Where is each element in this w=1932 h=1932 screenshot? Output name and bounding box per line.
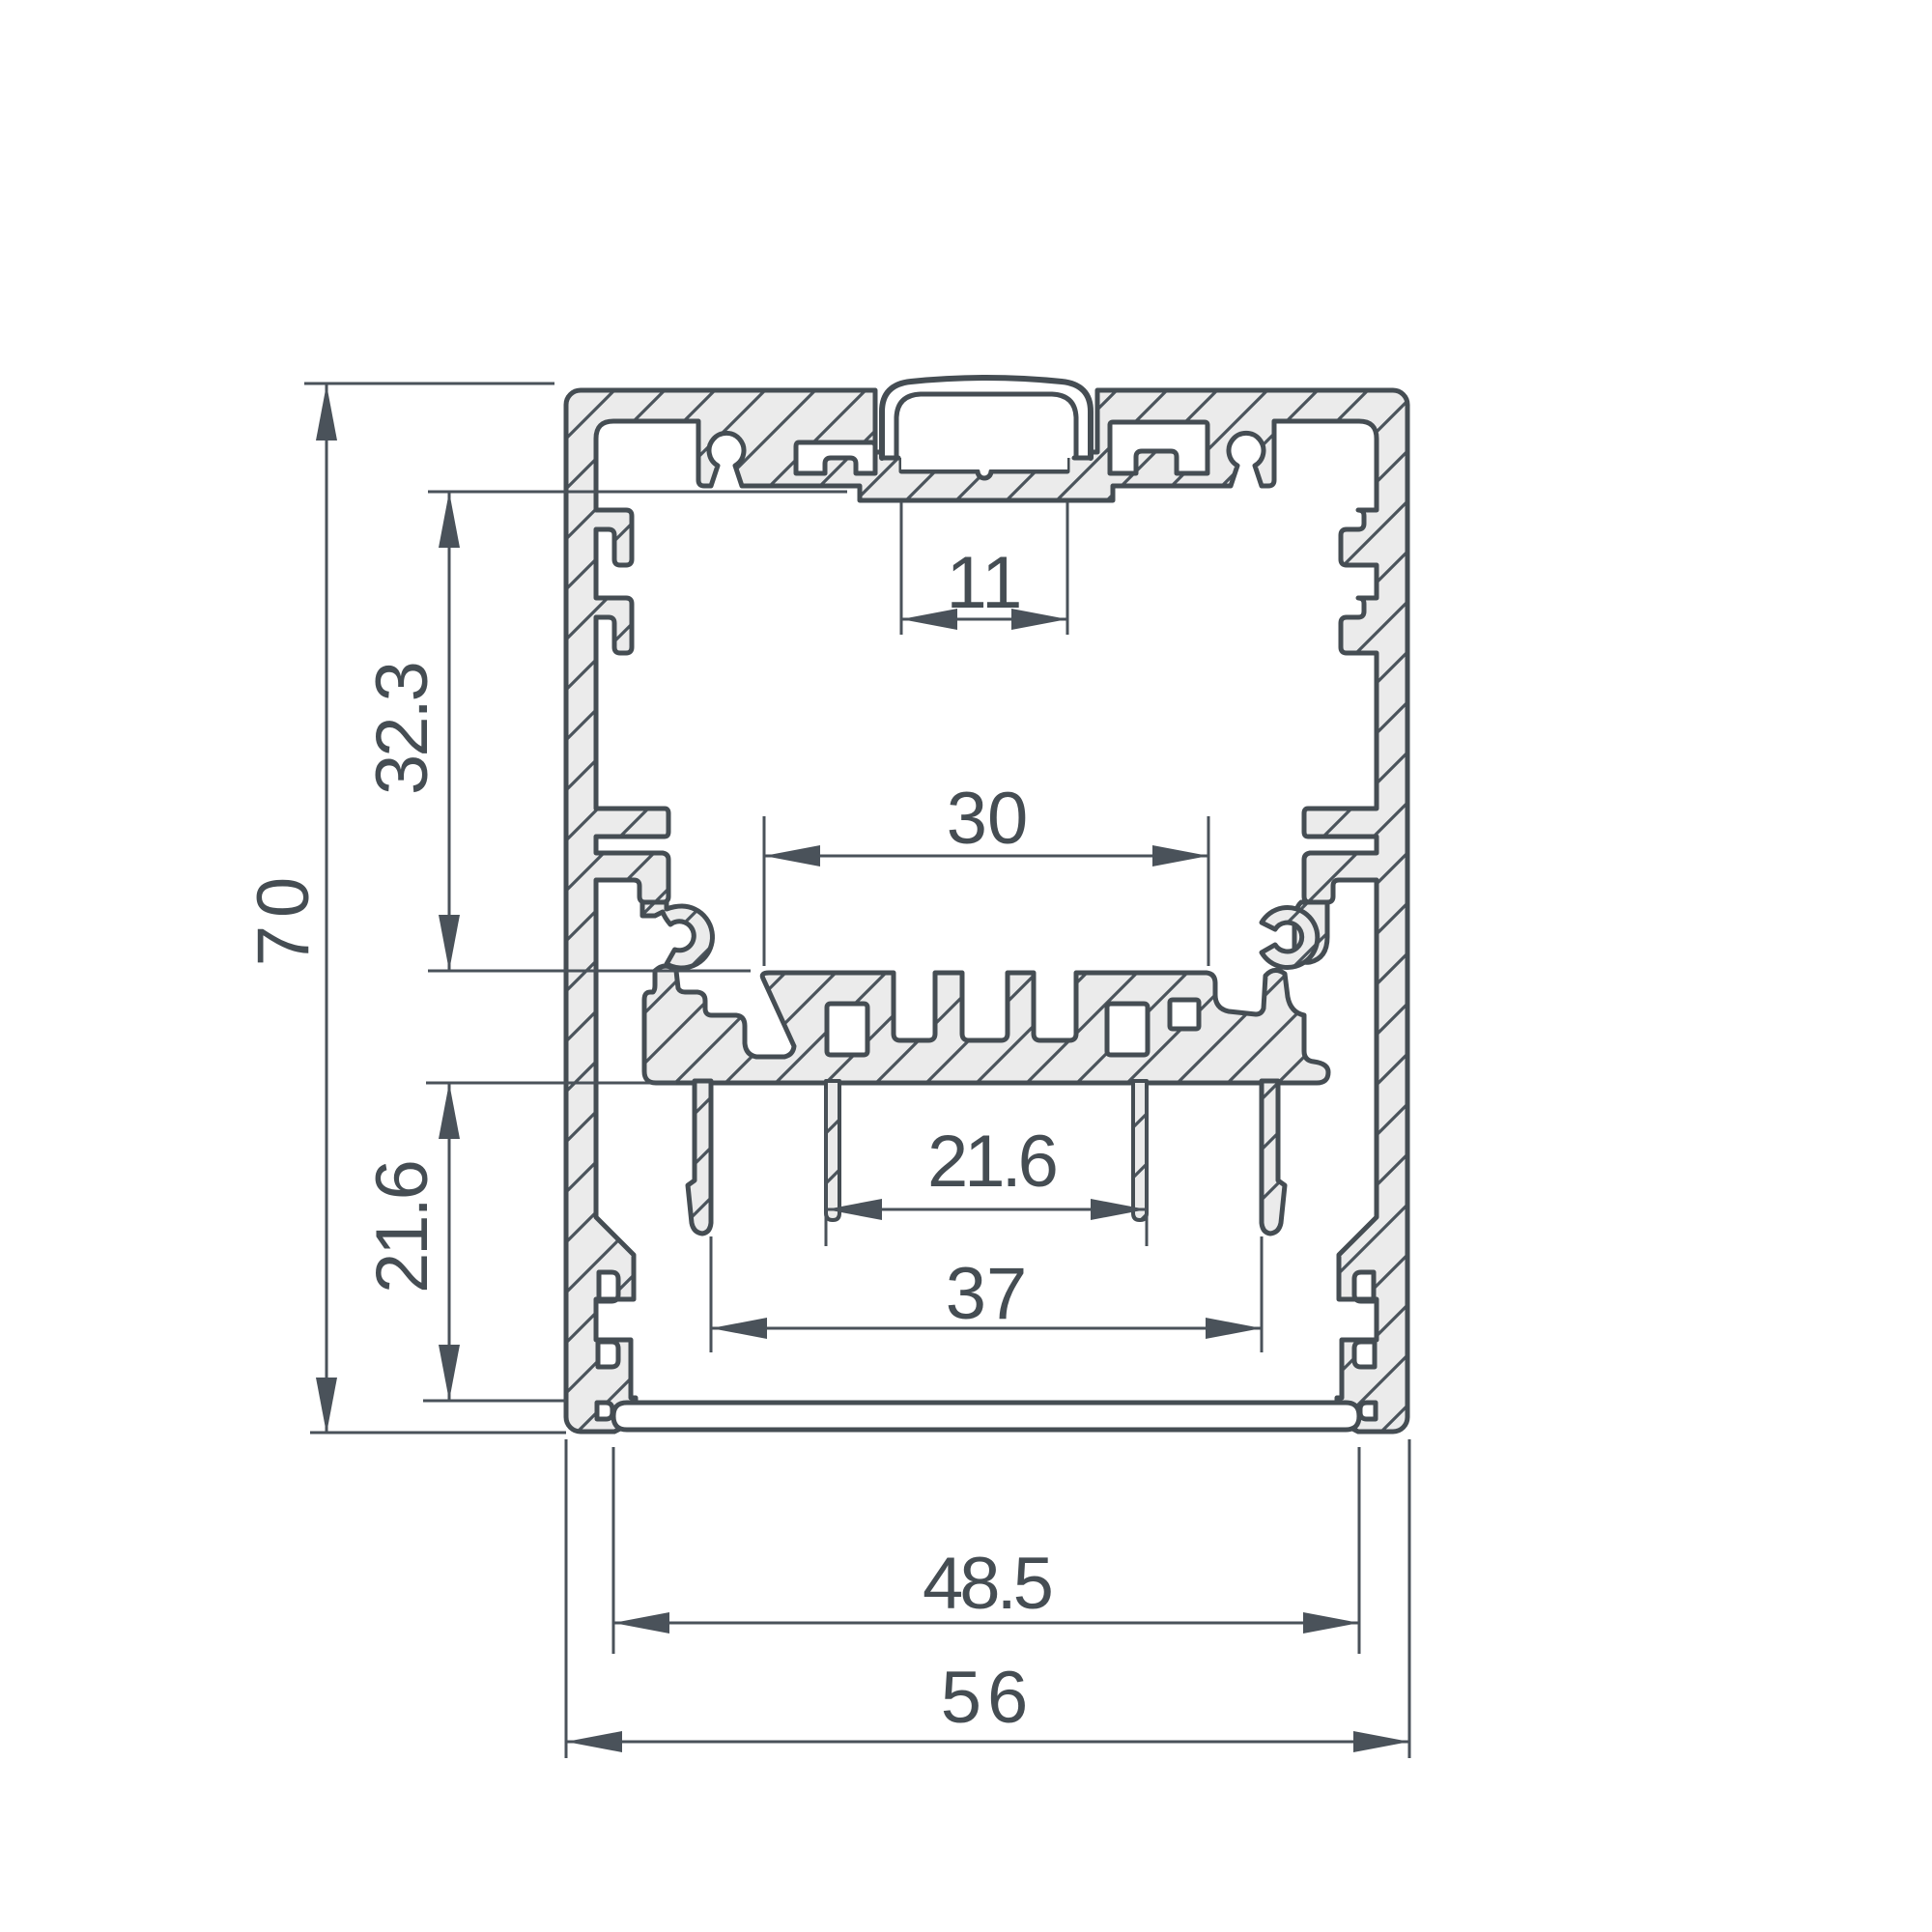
svg-text:21.6: 21.6: [927, 1121, 1056, 1203]
svg-text:11: 11: [947, 542, 1023, 624]
svg-text:56: 56: [941, 1657, 1035, 1739]
svg-text:70: 70: [242, 869, 325, 967]
svg-text:37: 37: [946, 1253, 1028, 1335]
svg-text:48.5: 48.5: [923, 1543, 1052, 1625]
svg-text:21.6: 21.6: [361, 1162, 443, 1293]
svg-text:30: 30: [947, 778, 1029, 860]
svg-text:32.3: 32.3: [361, 664, 443, 795]
